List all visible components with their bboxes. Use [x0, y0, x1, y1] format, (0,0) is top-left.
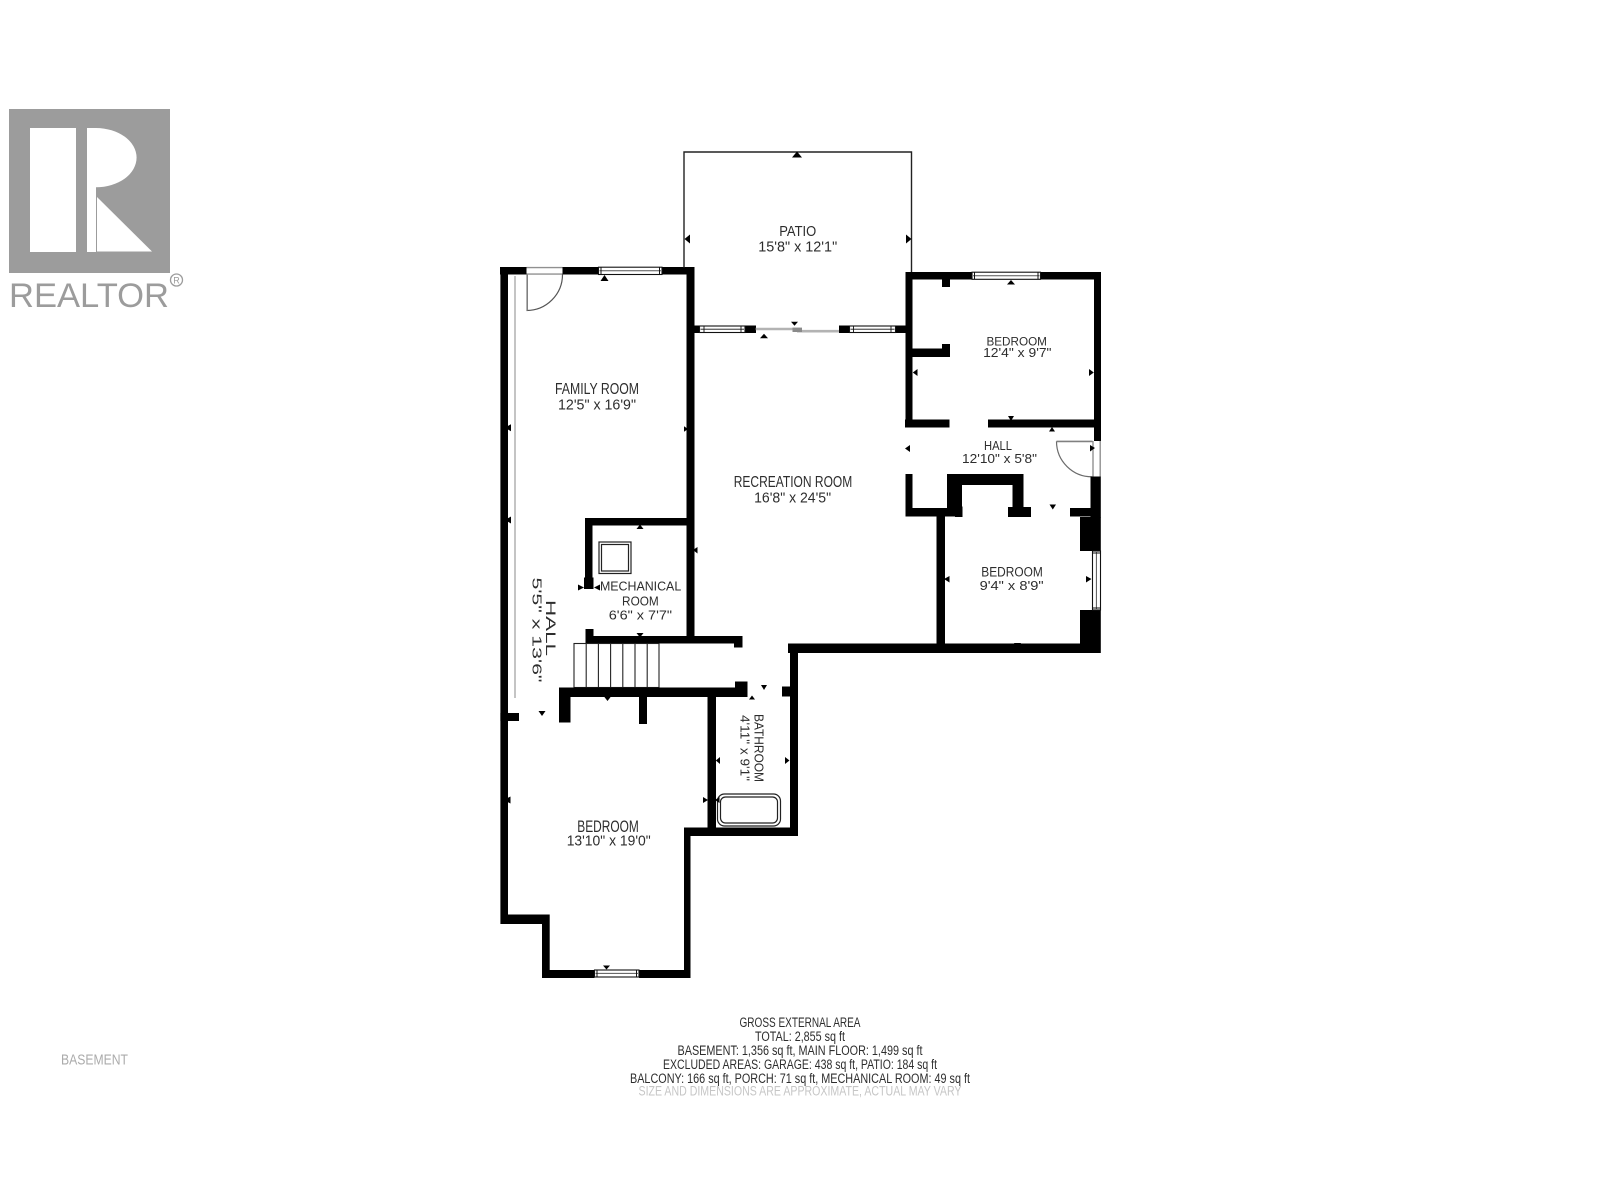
svg-text:EXCLUDED AREAS: GARAGE: 438 sq: EXCLUDED AREAS: GARAGE: 438 sq ft, PATIO…	[663, 1057, 937, 1072]
svg-text:5'5" x 13'6": 5'5" x 13'6"	[530, 578, 545, 684]
svg-text:9'4" x 8'9": 9'4" x 8'9"	[980, 578, 1044, 593]
svg-text:4'11" x 9'1": 4'11" x 9'1"	[738, 715, 752, 781]
svg-text:12'4" x 9'7": 12'4" x 9'7"	[983, 346, 1051, 360]
svg-text:FAMILY ROOM: FAMILY ROOM	[555, 381, 639, 398]
svg-text:SIZE AND DIMENSIONS ARE APPROX: SIZE AND DIMENSIONS ARE APPROXIMATE, ACT…	[639, 1084, 962, 1099]
svg-text:BASEMENT: BASEMENT	[61, 1052, 128, 1069]
svg-text:MECHANICAL: MECHANICAL	[600, 579, 681, 594]
svg-text:16'8" x 24'5": 16'8" x 24'5"	[754, 491, 831, 507]
svg-text:PATIO: PATIO	[779, 224, 816, 240]
svg-text:HALL: HALL	[984, 439, 1012, 453]
svg-text:GROSS EXTERNAL AREA: GROSS EXTERNAL AREA	[740, 1015, 861, 1030]
svg-text:BASEMENT: 1,356 sq ft, MAIN FL: BASEMENT: 1,356 sq ft, MAIN FLOOR: 1,499…	[678, 1043, 923, 1058]
svg-text:TOTAL: 2,855 sq ft: TOTAL: 2,855 sq ft	[755, 1029, 845, 1044]
svg-text:13'10" x 19'0": 13'10" x 19'0"	[567, 832, 651, 849]
svg-text:R: R	[173, 276, 180, 286]
svg-text:ROOM: ROOM	[622, 593, 659, 608]
svg-text:12'5" x 16'9": 12'5" x 16'9"	[558, 398, 636, 414]
svg-text:15'8" x 12'1": 15'8" x 12'1"	[758, 240, 837, 256]
svg-text:6'6" x 7'7": 6'6" x 7'7"	[609, 609, 672, 623]
svg-text:RECREATION ROOM: RECREATION ROOM	[734, 474, 853, 491]
svg-text:BATHROOM: BATHROOM	[752, 714, 767, 782]
svg-text:REALTOR: REALTOR	[9, 277, 169, 315]
svg-text:12'10" x 5'8": 12'10" x 5'8"	[962, 452, 1037, 466]
